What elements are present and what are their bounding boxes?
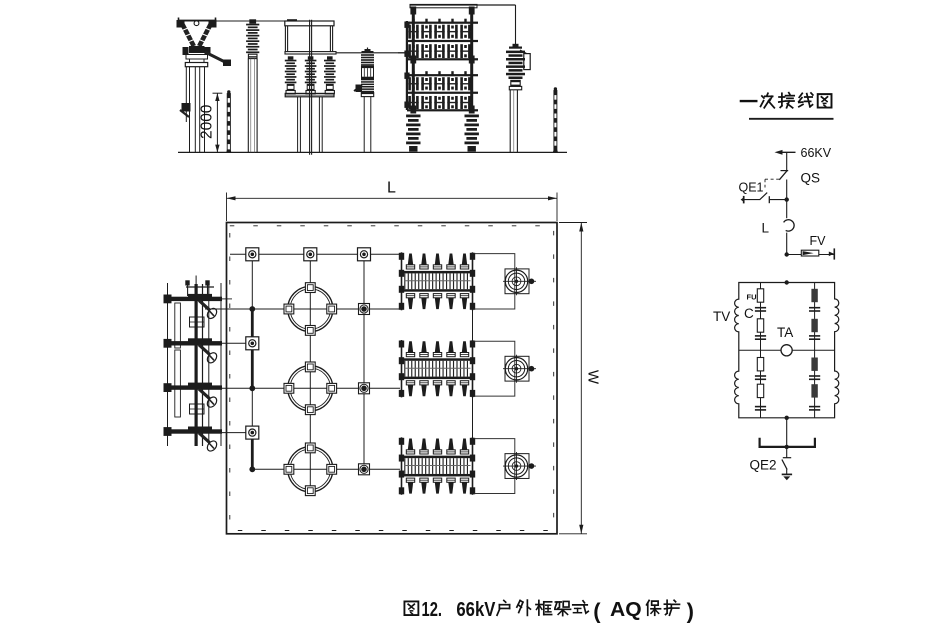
- svg-text:): ): [687, 599, 694, 624]
- svg-text:FV: FV: [810, 234, 827, 248]
- svg-text:L: L: [762, 221, 770, 236]
- svg-text:QS: QS: [801, 171, 821, 186]
- svg-text:TA: TA: [777, 325, 793, 340]
- svg-text:2000: 2000: [199, 104, 216, 139]
- svg-text:66kV: 66kV: [456, 599, 496, 621]
- svg-text:FU: FU: [747, 293, 757, 302]
- svg-text:12.: 12.: [422, 599, 443, 621]
- svg-text:W: W: [585, 370, 602, 385]
- svg-text:AQ: AQ: [610, 599, 642, 621]
- svg-text:TV: TV: [713, 309, 730, 324]
- svg-text:66KV: 66KV: [801, 146, 832, 160]
- svg-text:QE2: QE2: [750, 458, 777, 473]
- svg-text:(: (: [593, 599, 601, 624]
- svg-text:C: C: [744, 306, 754, 321]
- svg-text:QE1: QE1: [739, 181, 764, 195]
- svg-text:L: L: [387, 180, 396, 197]
